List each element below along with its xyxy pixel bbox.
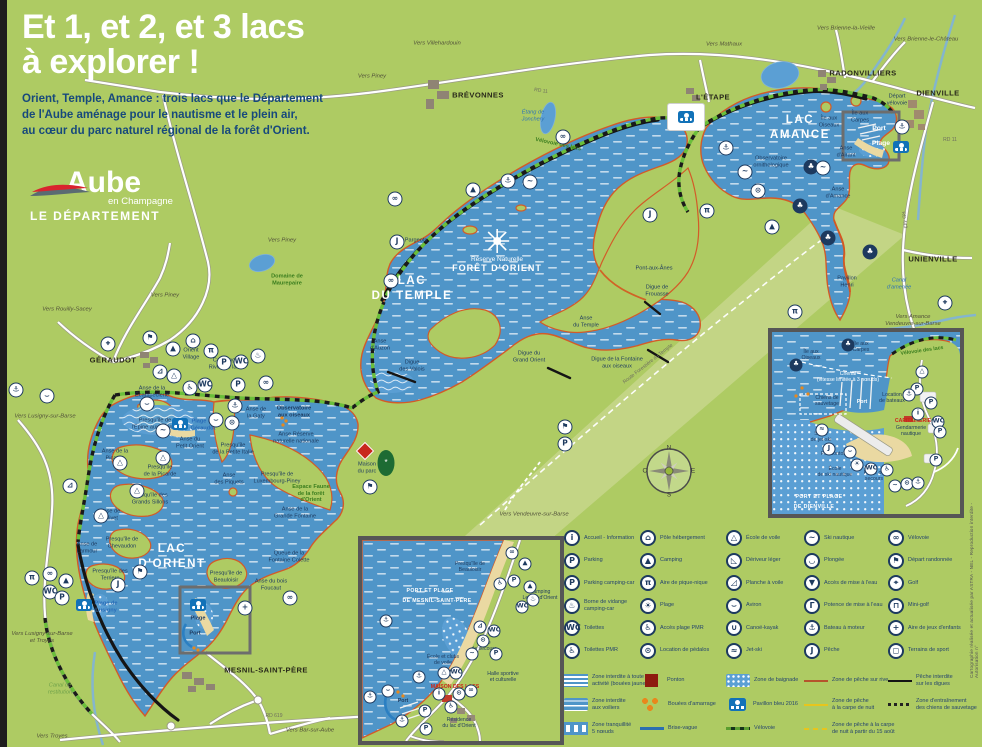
parking-icon: P (564, 553, 580, 569)
legend-swatch-dash-yellow (804, 722, 828, 735)
legend-item: PParking camping-car (564, 575, 634, 591)
legend-line-label: Zone de pêche à la carpe de nuit à parti… (832, 722, 895, 736)
legend-line-label: Vélovoie (754, 725, 775, 732)
motorboat-icon: ⚓ (903, 389, 916, 402)
compass-icon (643, 445, 695, 497)
legend-swatch-dashes (564, 722, 588, 735)
legend-item-label: Toilettes (584, 625, 604, 632)
legend-item: ⌖Golf (888, 575, 918, 591)
legend-line-item: Zone interdite aux voiliers (564, 698, 626, 712)
pedalo-icon: ⊙ (751, 184, 766, 199)
parking-icon: P (930, 454, 943, 467)
motorboat-icon: ⚓ (719, 141, 734, 156)
bike-icon: ∞ (465, 685, 478, 698)
compass-rose: N S E O (643, 445, 695, 497)
legend-line-item: Vélovoie (726, 722, 775, 735)
legend-line-item: Zone de pêche sur rive (804, 674, 888, 687)
swimming-icon: ~ (816, 161, 831, 176)
page-left-edge (0, 0, 7, 747)
info-icon: i (912, 408, 925, 421)
jetski-icon: ≈ (816, 424, 829, 437)
legend-item-label: Accès de mise à l'eau (824, 580, 877, 587)
parking-icon: P (558, 437, 573, 452)
motorboat-icon: ⚓ (804, 620, 820, 636)
golf-icon: ⌖ (101, 337, 116, 352)
camping-icon: ▲ (640, 553, 656, 569)
sailing-icon: △ (916, 366, 929, 379)
legend-swatch-line-red (804, 674, 828, 687)
pavillon-bleu-icon (190, 599, 206, 611)
legend-line-item: Bouées d'amarrage (640, 698, 716, 711)
legend-item-label: Canoë-kayak (746, 625, 778, 632)
camping-icon: ▲ (524, 581, 537, 594)
legend-item: ▼Accès de mise à l'eau (804, 575, 877, 591)
page-subtitle: Orient, Temple, Amance : trois lacs que … (22, 91, 390, 139)
diving-icon: ◡ (804, 553, 820, 569)
legend-line-label: Pêche interdite sur les digues (916, 674, 953, 688)
bike-icon: ∞ (283, 591, 298, 606)
legend-line-item: Pêche interdite sur les digues (888, 674, 953, 688)
trees-icon: ♣ (821, 231, 836, 246)
parking-icon: P (925, 397, 938, 410)
campervan-drain-icon: ♨ (251, 349, 266, 364)
legend-item: +Aire de jeux d'enfants (888, 620, 961, 636)
waterski-icon: ~ (523, 175, 538, 190)
pedalo-icon: ⊙ (477, 635, 490, 648)
minigolf-icon: ⊓ (888, 598, 904, 614)
boat-ramp-icon: ▼ (804, 575, 820, 591)
legend-line-item: Zone d'entraînement des chiens de sauvet… (888, 698, 977, 712)
legend-line-item: Zone de baignade (726, 674, 798, 687)
hiking-icon: ⚑ (133, 565, 148, 580)
legend-item-label: Aire de jeux d'enfants (908, 625, 961, 632)
legend-line-label: Zone de pêche à la carpe de nuit (832, 698, 874, 712)
legend-line-label: Zone de pêche sur rive (832, 677, 888, 684)
lodging-icon: ⌂ (186, 334, 201, 349)
legend-item-label: Location de pédalos (660, 647, 709, 654)
legend-item: ⊙Location de pédalos (640, 643, 709, 659)
logo-department: LE DÉPARTEMENT (30, 209, 200, 223)
logo-subname: en Champagne (108, 196, 200, 207)
golf-icon: ⌖ (888, 575, 904, 591)
pavillon-bleu-icon (893, 141, 909, 153)
legend-swatch-dash-green (726, 722, 750, 735)
reserve-line1: Réserve Naturelle (452, 256, 542, 263)
camping-icon: ▲ (466, 183, 481, 198)
legend-item-label: Départ randonnée (908, 557, 952, 564)
legend-item: ♿Toilettes PMR (564, 643, 618, 659)
legend-item-label: Accueil - Information (584, 535, 634, 542)
trees-icon: ♣ (842, 339, 855, 352)
legend-swatch-dots-black (888, 698, 912, 711)
velovoie-icon: ∞ (888, 530, 904, 546)
lodging-icon: ⌂ (640, 530, 656, 546)
parking-icon: P (55, 591, 70, 606)
canoe-icon: ⌣ (140, 397, 155, 412)
legend-item-label: École de voile (746, 535, 780, 542)
legend-swatch-waves (564, 698, 588, 711)
picnic-icon: π (640, 575, 656, 591)
legend-line-label: Zone de baignade (754, 677, 798, 684)
legend-item-label: Golf (908, 580, 918, 587)
legend-item-label: Dériveur léger (746, 557, 781, 564)
canoe-icon: ⌣ (844, 446, 857, 459)
swimming-icon: ~ (889, 480, 902, 493)
pavillon-bleu-icon (678, 111, 694, 123)
legend-item: ◿Planche à voile (726, 575, 783, 591)
camping-icon: ▲ (519, 558, 532, 571)
sailing-icon: △ (130, 484, 145, 499)
picnic-icon: π (700, 204, 715, 219)
toilets-icon: WC (865, 463, 878, 476)
trees-icon: ♣ (790, 359, 803, 372)
legend-item-label: Parking (584, 557, 603, 564)
legend-item-label: Borne de vidange camping-car (584, 599, 627, 613)
legend-item: ∪Canoë-kayak (726, 620, 778, 636)
legend-item: ◺Dériveur léger (726, 553, 781, 569)
waterski-icon: ~ (804, 530, 820, 546)
trees-icon: ♣ (863, 245, 878, 260)
hiking-icon: ⚑ (143, 331, 158, 346)
legend-item: WCToilettes (564, 620, 604, 636)
legend-item-label: Aviron (746, 602, 762, 609)
sailing-icon: △ (94, 509, 109, 524)
parking-icon: P (231, 378, 246, 393)
legend-swatch-line-yellow (804, 698, 828, 711)
bike-icon: ∞ (388, 192, 403, 207)
parking-icon: P (508, 575, 521, 588)
picnic-icon: π (204, 344, 219, 359)
legend-item: ~Ski nautique (804, 530, 854, 546)
legend-line-item: Zone de pêche à la carpe de nuit (804, 698, 874, 712)
toilets-icon: WC (450, 667, 463, 680)
legend-item: ⌂Pôle hébergement (640, 530, 705, 546)
playground-icon: + (238, 601, 253, 616)
toilets-icon: WC (198, 378, 213, 393)
legend-item: ◻Terrains de sport (888, 643, 949, 659)
legend-item-label: Plage (660, 602, 674, 609)
legend-item: iAccueil - Information (564, 530, 634, 546)
legend-line-item: Brise-vague (640, 722, 697, 735)
legend-item-label: Ski nautique (824, 535, 854, 542)
legend-item: ⊓Mini-golf (888, 598, 929, 614)
reserve-naturelle-emblem: Réserve Naturelle FORÊT D'ORIENT (452, 228, 542, 273)
compass-east: E (691, 468, 695, 475)
legend-line-label: Pavillon bleu 2016 (753, 701, 798, 708)
inset-mesnil-saint-pere: PORT ET PLAGE DE MESNIL-SAINT-PÈRE Presq… (358, 536, 564, 745)
legend-line-label: Zone tranquillité 5 nœuds (592, 722, 631, 736)
compass-north: N (667, 445, 672, 452)
legend-item-label: Potence de mise à l'eau (824, 602, 883, 609)
info-icon: i (564, 530, 580, 546)
canoe-icon: ⌣ (382, 685, 395, 698)
map-poster: Et 1, et 2, et 3 lacs à explorer ! Orien… (0, 0, 982, 747)
bike-icon: ∞ (556, 130, 571, 145)
bike-icon: ∞ (384, 274, 399, 289)
legend-item-label: Pôle hébergement (660, 535, 705, 542)
windsurf-icon: ◿ (726, 575, 742, 591)
legend-line-item: Zone tranquillité 5 nœuds (564, 722, 631, 736)
jetski-icon: ≈ (726, 643, 742, 659)
parking-icon: P (934, 426, 947, 439)
legend-item-label: Bateau à moteur (824, 625, 865, 632)
sports-field-icon: ◻ (888, 643, 904, 659)
legend-item: ΓPotence de mise à l'eau (804, 598, 883, 614)
canoe-icon: ∪ (726, 620, 742, 636)
bike-icon: ∞ (259, 376, 274, 391)
windsurf-icon: ⊿ (474, 621, 487, 634)
legend-item-label: Planche à voile (746, 580, 783, 587)
legend-item: πAire de pique-nique (640, 575, 708, 591)
legend-line-label: Bouées d'amarrage (668, 701, 716, 708)
legend-line-label: Ponton (667, 677, 684, 684)
legend-item-label: Pêche (824, 647, 840, 654)
accessible-toilets-icon: ♿ (564, 643, 580, 659)
legend-swatch-dots (726, 674, 750, 687)
legend-swatch-buoys (640, 698, 664, 711)
hiking-icon: ⚑ (363, 480, 378, 495)
info-icon: i (433, 688, 446, 701)
fishing-icon: J (823, 443, 836, 456)
parc-naturel-logo-icon: * (378, 450, 395, 476)
legend-item-label: Terrains de sport (908, 647, 949, 654)
beach-icon: ☀ (851, 459, 864, 472)
legend-item-label: Mini-golf (908, 602, 929, 609)
playground-icon: + (888, 620, 904, 636)
header: Et 1, et 2, et 3 lacs à explorer ! Orien… (22, 10, 390, 139)
hiking-icon: ⚑ (558, 420, 573, 435)
logo-swoosh-icon (28, 180, 92, 206)
sailing-icon: △ (113, 456, 128, 471)
sailing-icon: △ (167, 369, 182, 384)
legend-item: ▲Camping (640, 553, 682, 569)
hiking-start-icon: ⚑ (888, 553, 904, 569)
windsurf-icon: ⊿ (63, 479, 78, 494)
sailing-school-icon: △ (726, 530, 742, 546)
legend-item-label: Aire de pique-nique (660, 580, 708, 587)
reserve-star-icon (484, 228, 510, 254)
legend-swatch-line-black (888, 674, 912, 687)
legend-line-label: Zone interdite aux voiliers (592, 698, 626, 712)
motorboat-icon: ⚓ (228, 399, 243, 414)
pavillon-bleu-award-box (667, 103, 705, 131)
accessible-beach-icon: ♿ (640, 620, 656, 636)
cartography-credit: Cartographie réalisée et actualisée par … (969, 478, 979, 678)
legend-item: ☀Plage (640, 598, 674, 614)
fishing-icon: J (390, 235, 405, 250)
camping-icon: ▲ (166, 342, 181, 357)
camping-icon: ▲ (59, 574, 74, 589)
legend-item-label: Accès plage PMR (660, 625, 704, 632)
inset-dienville: PORT ET PLAGE DE DIENVILLE Île aux Oisea… (768, 328, 964, 518)
pedalo-icon: ⊙ (640, 643, 656, 659)
accessible-icon: ♿ (445, 701, 458, 714)
motorboat-icon: ⚓ (895, 120, 910, 135)
parking-icon: P (490, 648, 503, 661)
legend-line-item: Ponton (640, 674, 684, 687)
waterski-icon: ~ (738, 165, 753, 180)
motorboat-icon: ⚓ (396, 715, 409, 728)
motorboat-icon: ⚓ (380, 615, 393, 628)
legend-item-label: Plongée (824, 557, 844, 564)
golf-icon: ⌖ (938, 296, 953, 311)
accessible-icon: ♿ (494, 578, 507, 591)
bike-icon: ∞ (43, 567, 58, 582)
legend-panel: iAccueil - InformationPParkingPParking c… (558, 528, 978, 745)
page-title: Et 1, et 2, et 3 lacs à explorer ! (22, 10, 390, 81)
swimming-icon: ~ (156, 424, 171, 439)
legend-item-label: Vélovoie (908, 535, 929, 542)
legend-item: ♨Borne de vidange camping-car (564, 598, 627, 614)
legend-item: ♿Accès plage PMR (640, 620, 704, 636)
motorboat-icon: ⚓ (912, 477, 925, 490)
parking-icon: P (217, 356, 232, 371)
boat-hoist-icon: Γ (804, 598, 820, 614)
picnic-icon: π (788, 305, 803, 320)
campervan-drain-icon: ♨ (527, 594, 540, 607)
motorboat-icon: ⚓ (413, 671, 426, 684)
legend-line-item: Zone interdite à toute activité (bouées … (564, 674, 650, 688)
compass-south: S (667, 492, 671, 499)
legend-item: ⌣Aviron (726, 598, 762, 614)
motorboat-icon: ⚓ (9, 383, 24, 398)
fishing-icon: J (804, 643, 820, 659)
legend-swatch-line-blue (640, 722, 664, 735)
fishing-icon: J (111, 578, 126, 593)
parking-icon: P (420, 723, 433, 736)
toilets-icon: WC (516, 601, 529, 614)
dinghy-icon: ◺ (726, 553, 742, 569)
legend-line-item: Pavillon bleu 2016 (726, 698, 798, 711)
pedalo-icon: ⊙ (225, 416, 240, 431)
campervan-drain-icon: ♨ (564, 598, 580, 614)
legend-item-label: Toilettes PMR (584, 647, 618, 654)
parking-icon: P (419, 705, 432, 718)
canoe-icon: ⌣ (40, 389, 55, 404)
bike-icon: ∞ (506, 547, 519, 560)
legend-swatch-pb (729, 698, 746, 711)
swimming-icon: ~ (466, 648, 479, 661)
fishing-icon: J (643, 208, 658, 223)
picnic-icon: π (25, 571, 40, 586)
toilets-icon: WC (488, 625, 501, 638)
legend-item: JPêche (804, 643, 840, 659)
rowing-icon: ⌣ (726, 598, 742, 614)
legend-item: ⚓Bateau à moteur (804, 620, 865, 636)
legend-line-label: Zone d'entraînement des chiens de sauvet… (916, 698, 977, 712)
legend-item: ≈Jet-ski (726, 643, 762, 659)
beach-icon: ☀ (640, 598, 656, 614)
pavillon-bleu-icon (76, 599, 92, 611)
legend-item: PParking (564, 553, 603, 569)
campervan-parking-icon: P (564, 575, 580, 591)
legend-item-label: Parking camping-car (584, 580, 634, 587)
pavillon-bleu-icon (172, 418, 188, 430)
aube-department-logo: Aube en Champagne LE DÉPARTEMENT (30, 168, 200, 223)
sailing-icon: △ (156, 451, 171, 466)
legend-item: ∞Vélovoie (888, 530, 929, 546)
legend-item: ⚑Départ randonnée (888, 553, 952, 569)
motorboat-icon: ⚓ (501, 174, 516, 189)
compass-west: O (642, 468, 647, 475)
legend-item: △École de voile (726, 530, 780, 546)
reserve-line2: FORÊT D'ORIENT (452, 263, 542, 273)
windsurf-icon: ⊿ (153, 365, 168, 380)
legend-line-label: Brise-vague (668, 725, 697, 732)
legend-swatch-stripes (564, 674, 588, 687)
rowing-icon: ⌣ (209, 413, 224, 428)
legend-line-item: Zone de pêche à la carpe de nuit à parti… (804, 722, 895, 736)
camping-icon: ▲ (765, 220, 780, 235)
accessible-icon: ♿ (183, 381, 198, 396)
legend-item-label: Camping (660, 557, 682, 564)
legend-item: ◡Plongée (804, 553, 844, 569)
toilets-icon: WC (564, 620, 580, 636)
motorboat-icon: ⚓ (364, 691, 377, 704)
accessible-icon: ♿ (881, 464, 894, 477)
legend-swatch-ponton (645, 674, 658, 687)
toilets-icon: WC (234, 355, 249, 370)
legend-item-label: Jet-ski (746, 647, 762, 654)
trees-icon: ♣ (793, 199, 808, 214)
